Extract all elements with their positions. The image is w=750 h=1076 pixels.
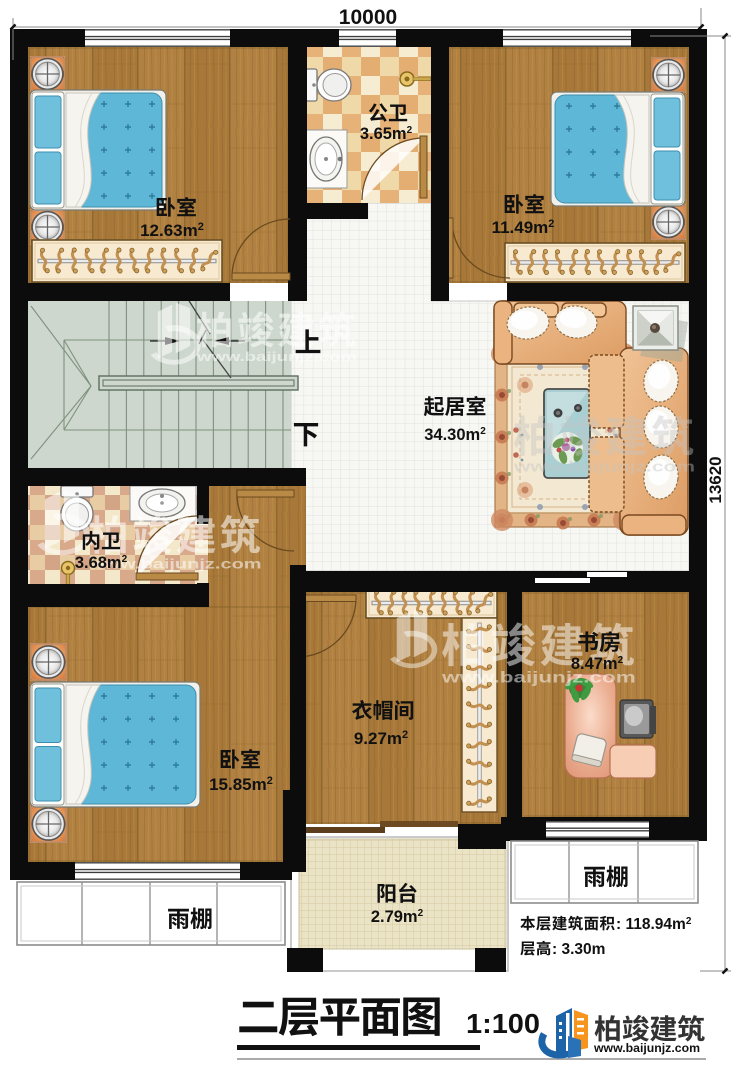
svg-text:www.baijunjz.com: www.baijunjz.com	[593, 1041, 700, 1055]
svg-text:3.68m2: 3.68m2	[75, 554, 128, 572]
svg-text:34.30m2: 34.30m2	[424, 426, 486, 444]
svg-text:13620: 13620	[706, 456, 725, 503]
svg-text:3.65m2: 3.65m2	[360, 125, 413, 143]
svg-text:2.79m2: 2.79m2	[371, 908, 424, 926]
svg-text:8.47m2: 8.47m2	[571, 655, 624, 673]
svg-text:12.63m2: 12.63m2	[140, 221, 204, 240]
svg-text:: 118.94m2: : 118.94m2	[616, 916, 692, 933]
svg-text:1:100: 1:100	[466, 1008, 540, 1039]
svg-text:10000: 10000	[339, 6, 397, 29]
svg-text:: 3.30m: : 3.30m	[552, 941, 605, 958]
svg-text:9.27m2: 9.27m2	[354, 729, 408, 748]
svg-text:www.baijunjz.com: www.baijunjz.com	[513, 459, 695, 475]
svg-text:15.85m2: 15.85m2	[209, 775, 273, 794]
svg-text:11.49m2: 11.49m2	[492, 218, 555, 237]
svg-text:www.baijunjz.com: www.baijunjz.com	[196, 349, 357, 364]
